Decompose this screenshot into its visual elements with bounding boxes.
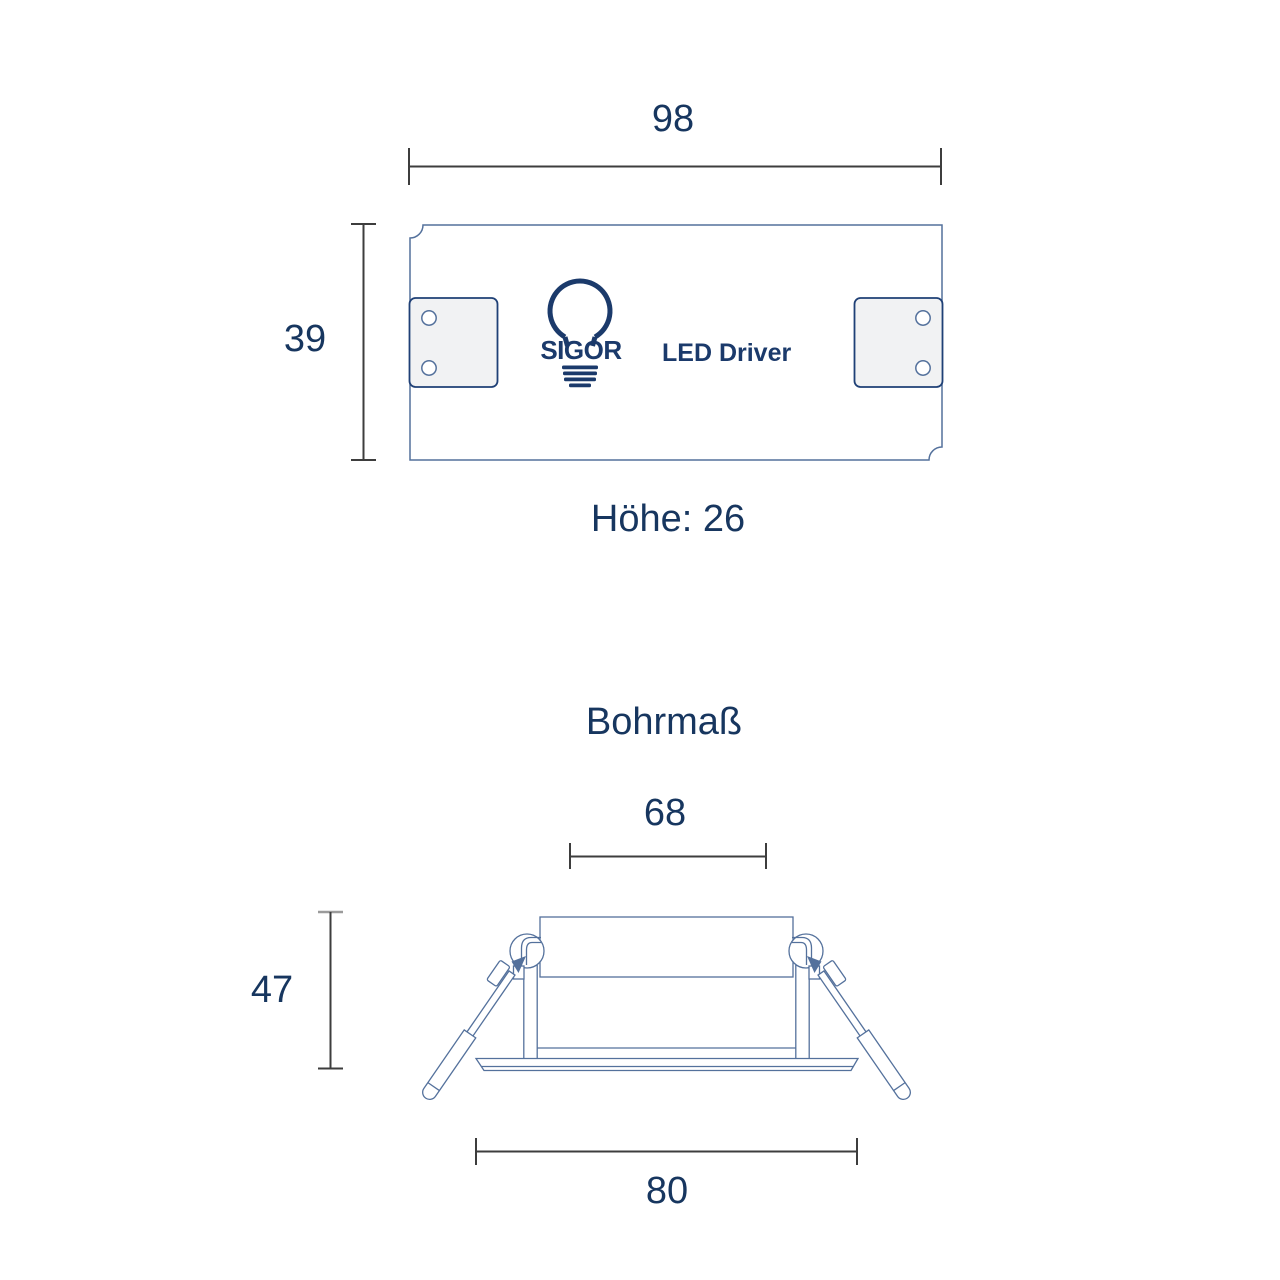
technical-drawing-page: 98 39 [0, 0, 1280, 1280]
brand-wordmark: SIGOR [540, 335, 622, 365]
mounting-tab-plate [410, 298, 498, 387]
drawing-canvas: 98 39 [0, 0, 1280, 1280]
mounting-tab-plate [855, 298, 943, 387]
lamp-housing [540, 917, 793, 977]
clip-sleeve [420, 1030, 476, 1102]
drill-diagram: Bohrmaß 68 [251, 701, 921, 1212]
clip-sleeve [857, 1030, 913, 1102]
screw-hole [422, 361, 436, 375]
screw-hole [916, 311, 930, 325]
dimension-depth: 47 [251, 912, 343, 1069]
trim-flange [476, 1059, 858, 1071]
product-label: LED Driver [662, 339, 791, 367]
spring-clip-left [412, 960, 520, 1102]
bulb-thread [563, 372, 597, 376]
mounting-tab-left [410, 298, 498, 387]
bulb-thread [564, 378, 596, 382]
outer-dim-label: 80 [646, 1170, 688, 1212]
dimension-cutout: 68 [570, 792, 766, 869]
spring-clip-right [813, 960, 921, 1102]
dimension-outer: 80 [476, 1138, 857, 1212]
bulb-thread [562, 366, 598, 370]
led-driver-diagram: 98 39 [284, 98, 943, 540]
height-dim-label: 39 [284, 318, 326, 360]
height-note-label: Höhe: 26 [591, 498, 745, 540]
screw-hole [916, 361, 930, 375]
mounting-tab-right [855, 298, 943, 387]
bulb-thread [569, 384, 591, 388]
drill-diagram-title: Bohrmaß [586, 701, 742, 743]
screw-hole [422, 311, 436, 325]
downlight-cross-section [412, 917, 922, 1102]
width-dim-label: 98 [652, 98, 694, 140]
depth-dim-label: 47 [251, 969, 293, 1011]
dimension-height: 39 [284, 224, 376, 460]
cutout-dim-label: 68 [644, 792, 686, 834]
dimension-width: 98 [409, 98, 941, 185]
